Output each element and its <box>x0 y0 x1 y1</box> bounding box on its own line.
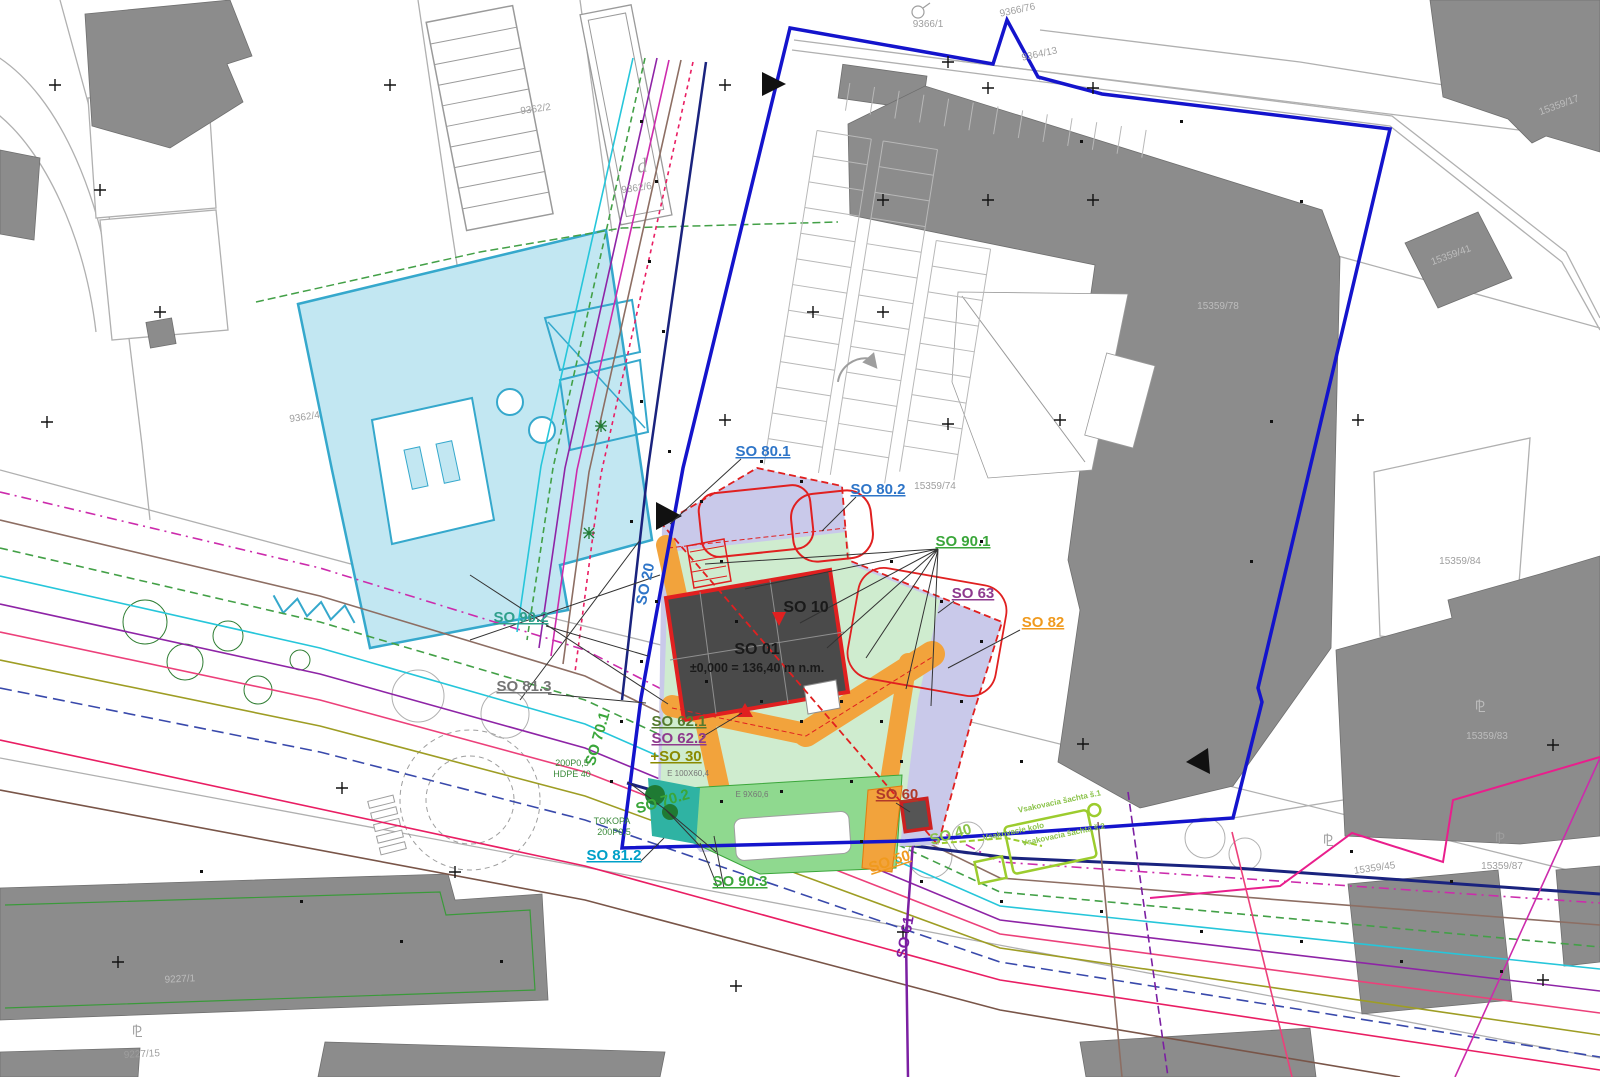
label-so-63: SO 63 <box>952 585 995 602</box>
property-line-symbol: ⅊ <box>132 1024 143 1041</box>
building-bottom-left-slab3 <box>0 1048 140 1077</box>
bright-green-inner-white <box>734 811 852 861</box>
label-e1: E 100X60,4 <box>667 769 709 778</box>
label-pipe-2b: 200P0,5 <box>597 827 631 837</box>
label-so-01: SO 01 <box>734 641 779 658</box>
property-line-symbol: ⅊ <box>1495 831 1506 848</box>
site-plan-canvas: SO 80.1 SO 80.2 SO 90.1 SO 63 SO 10 SO 8… <box>0 0 1600 1077</box>
building-bottom-center <box>1080 1028 1316 1077</box>
parcel-9227-15: 9227/15 <box>124 1048 161 1061</box>
roundabout-inner <box>426 756 514 844</box>
property-line-symbol: ⅊ <box>1323 833 1334 850</box>
label-so-10: SO 10 <box>783 599 828 616</box>
survey-point-symbol <box>912 6 924 18</box>
label-so-90-1: SO 90.1 <box>935 533 990 550</box>
label-so-90-3: SO 90.3 <box>712 873 767 890</box>
tree-circle <box>290 650 310 670</box>
parcel-15359-87: 15359/87 <box>1481 861 1523 872</box>
survey-point-tick <box>923 3 930 8</box>
building-left-edge <box>0 150 40 240</box>
building-bottom-left-slab2 <box>318 1042 665 1077</box>
tree-circle <box>123 600 167 644</box>
box-so60 <box>901 798 931 831</box>
aisle-arrow <box>838 354 870 386</box>
parcel-9362-4: 9362/4 <box>289 410 321 425</box>
cyan-inner-courtyard <box>372 398 494 544</box>
label-so-30: +SO 30 <box>650 748 701 765</box>
label-so-80-1: SO 80.1 <box>735 443 790 460</box>
label-pipe-1a: 200P0,5 <box>555 758 589 768</box>
label-so-60: SO 60 <box>876 786 919 803</box>
parcel-9227-1: 9227/1 <box>164 973 196 986</box>
parcel-15359-45: 15359/45 <box>1353 860 1396 877</box>
building-top-left <box>85 0 252 148</box>
label-so-82: SO 82 <box>1022 614 1065 631</box>
parcel-15359-74: 15359/74 <box>914 481 956 492</box>
parcel-9364-13: 9364/13 <box>1021 45 1059 63</box>
tree-asterisk <box>583 527 595 539</box>
building-bottom-left-slab <box>0 874 548 1020</box>
building-small-square <box>146 318 176 348</box>
parcel-9366-1: 9366/1 <box>913 19 944 30</box>
label-pipe-1b: HDPE 40 <box>553 769 591 779</box>
roundabout-outer <box>400 730 540 870</box>
label-e2: E 9X60,6 <box>736 790 769 799</box>
label-so-61: SO 61 <box>894 915 918 960</box>
cyan-fence-zigzag <box>271 595 356 623</box>
label-pipe-2a: TOKOPA <box>594 816 631 826</box>
parcel-15359-78: 15359/78 <box>1197 301 1239 312</box>
building-15359-41 <box>1405 212 1512 308</box>
parcel-9366-76: 9366/76 <box>999 1 1037 19</box>
property-line-symbol: ⅊ <box>1475 699 1486 716</box>
label-so-62-2: SO 62.2 <box>651 730 706 747</box>
parcel-15359-83: 15359/83 <box>1466 731 1508 742</box>
label-so-80-2: SO 80.2 <box>850 481 905 498</box>
aisle-arrowhead <box>862 351 880 369</box>
parcel-15359-84: 15359/84 <box>1439 556 1481 567</box>
garage-building <box>426 6 553 231</box>
tree-circle-gray <box>1185 818 1225 858</box>
tree-circle <box>244 676 272 704</box>
label-so-81-2: SO 81.2 <box>586 847 641 864</box>
tree-circle-gray <box>1229 838 1261 870</box>
crosswalk <box>368 795 407 855</box>
label-so-01-level: ±0,000 = 136,40 m n.m. <box>690 661 824 675</box>
label-so-81-3: SO 81.3 <box>496 678 551 695</box>
label-so-62-1: SO 62.1 <box>651 713 706 730</box>
label-so-90-2: SO 90.2 <box>493 609 548 626</box>
tree-asterisk <box>595 420 607 432</box>
building-right-lower <box>1336 556 1600 844</box>
cyan-circle1 <box>497 389 523 415</box>
site-plan: SO 80.1 SO 80.2 SO 90.1 SO 63 SO 10 SO 8… <box>0 0 1600 1077</box>
building-bottom-right-2 <box>1556 866 1600 966</box>
